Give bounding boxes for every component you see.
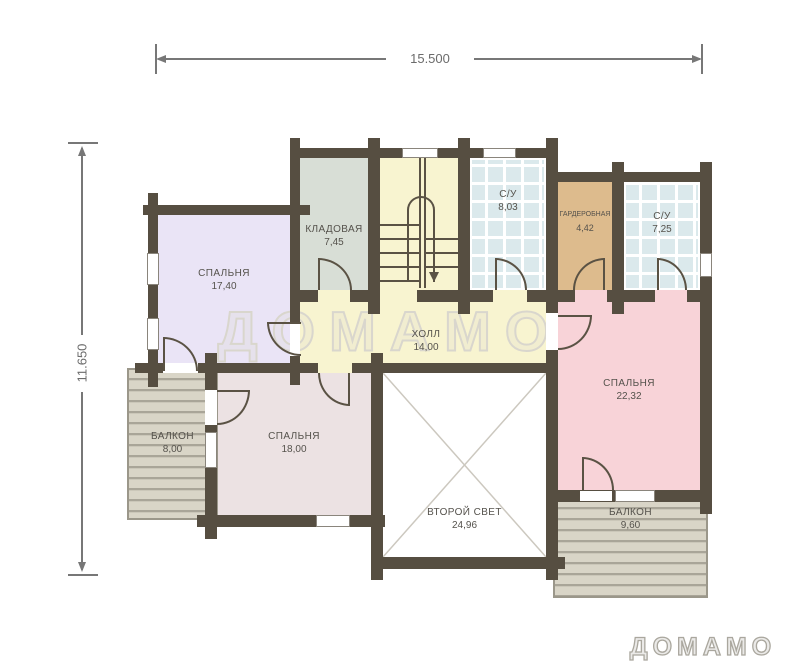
room-area: 7,25: [624, 224, 700, 236]
wall-log-end: [205, 353, 217, 363]
room-area: 14,00: [376, 342, 476, 354]
room-area: 24,96: [383, 520, 546, 532]
room-area: 22,32: [558, 391, 700, 403]
dimension-line: [81, 148, 83, 335]
window: [147, 318, 159, 350]
wall-log-end: [546, 138, 558, 148]
label-hall: ХОЛЛ 14,00: [376, 329, 476, 354]
label-balcony-960: БАЛКОН 9,60: [553, 507, 708, 532]
wall-segment: [458, 148, 470, 302]
wall-segment: [371, 557, 565, 569]
room-name: СПАЛЬНЯ: [217, 431, 371, 443]
stair-tread: [426, 252, 458, 254]
room-name: ГАРДЕРОБНАЯ: [556, 209, 614, 221]
room-area: 8,00: [127, 444, 218, 456]
brand-logo: ДОМАМО: [628, 633, 778, 662]
label-bedroom-2232: СПАЛЬНЯ 22,32: [558, 378, 700, 403]
stair-tread: [419, 158, 421, 288]
wall-log-end: [612, 162, 624, 172]
wall-log-end: [290, 138, 300, 148]
room-area: 8,03: [470, 202, 546, 214]
door-opening: [493, 290, 527, 302]
stair-tread: [380, 224, 419, 226]
label-bedroom-1800: СПАЛЬНЯ 18,00: [217, 431, 371, 456]
room-area: 18,00: [217, 444, 371, 456]
wall-log-end: [458, 138, 470, 148]
label-void: ВТОРОЙ СВЕТ 24,96: [383, 507, 546, 532]
door-opening: [655, 290, 687, 302]
wall-log-end: [368, 138, 380, 148]
room-area: 4,42: [556, 222, 614, 234]
dimension-tick: [68, 142, 98, 144]
label-storage: КЛАДОВАЯ 7,45: [300, 224, 368, 249]
door-opening: [546, 313, 558, 350]
window: [615, 490, 655, 502]
wall-segment: [197, 515, 385, 527]
wall-segment: [371, 363, 383, 569]
wall-log-end: [205, 527, 217, 539]
wall-segment: [417, 290, 493, 302]
room-name: ВТОРОЙ СВЕТ: [383, 507, 546, 519]
room-name: С/У: [624, 211, 700, 223]
floor-plan-canvas: ДОМАМО СПАЛЬНЯ 17,40 КЛАДОВАЯ 7,45 С/У 8…: [0, 0, 800, 664]
room-name: КЛАДОВАЯ: [300, 224, 368, 236]
door-opening: [575, 290, 607, 302]
wall-log-end: [612, 302, 624, 314]
wall-log-end: [290, 373, 300, 385]
wall-log-end: [371, 569, 383, 580]
label-bathroom-803: С/У 8,03: [470, 189, 546, 214]
stair-tread: [380, 280, 419, 282]
wall-segment: [700, 172, 712, 502]
dimension-width-label: 15.500: [386, 51, 474, 66]
dimension-tick: [155, 44, 157, 74]
window: [316, 515, 350, 527]
room-name: ХОЛЛ: [376, 329, 476, 341]
wall-log-end: [546, 569, 558, 580]
room-area: 17,40: [158, 281, 290, 293]
wall-log-end: [148, 193, 158, 205]
door-opening: [380, 290, 417, 302]
wall-log-end: [700, 162, 712, 172]
door-opening: [580, 491, 612, 501]
wall-segment: [612, 172, 624, 302]
stair-tread: [380, 266, 419, 268]
label-bedroom-1740: СПАЛЬНЯ 17,40: [158, 268, 290, 293]
room-area: 9,60: [553, 520, 708, 532]
room-name: БАЛКОН: [553, 507, 708, 519]
wall-segment: [546, 172, 712, 182]
stair-direction-arrow: [429, 272, 439, 282]
dimension-tick: [68, 574, 98, 576]
stair-tread: [426, 266, 458, 268]
wall-log-end: [148, 375, 158, 387]
label-wardrobe: ГАРДЕРОБНАЯ 4,42: [556, 209, 614, 234]
wall-log-end: [368, 302, 380, 314]
label-bathroom-725: С/У 7,25: [624, 211, 700, 236]
stair-tread: [426, 238, 458, 240]
door-opening: [318, 363, 352, 373]
dimension-line: [474, 58, 700, 60]
dimension-line: [81, 392, 83, 570]
room-name: С/У: [470, 189, 546, 201]
dimension-line: [160, 58, 386, 60]
stair-tread: [424, 158, 426, 288]
wall-segment: [368, 148, 380, 302]
door-opening: [205, 390, 217, 425]
wall-segment: [558, 290, 575, 302]
dimension-tick: [701, 44, 703, 74]
door-opening: [318, 290, 350, 302]
wall-segment: [527, 290, 546, 302]
window: [483, 148, 516, 158]
dimension-height-label: 11.650: [75, 344, 90, 383]
label-balcony-800: БАЛКОН 8,00: [127, 431, 218, 456]
window: [402, 148, 438, 158]
wall-log-end: [371, 353, 383, 363]
stair-tread: [380, 252, 419, 254]
room-name: БАЛКОН: [127, 431, 218, 443]
stair-tread: [380, 238, 419, 240]
wall-log-end: [458, 302, 470, 314]
wall-segment: [143, 205, 310, 215]
room-name: СПАЛЬНЯ: [558, 378, 700, 390]
room-area: 7,45: [300, 237, 368, 249]
window: [700, 253, 712, 277]
room-name: СПАЛЬНЯ: [158, 268, 290, 280]
